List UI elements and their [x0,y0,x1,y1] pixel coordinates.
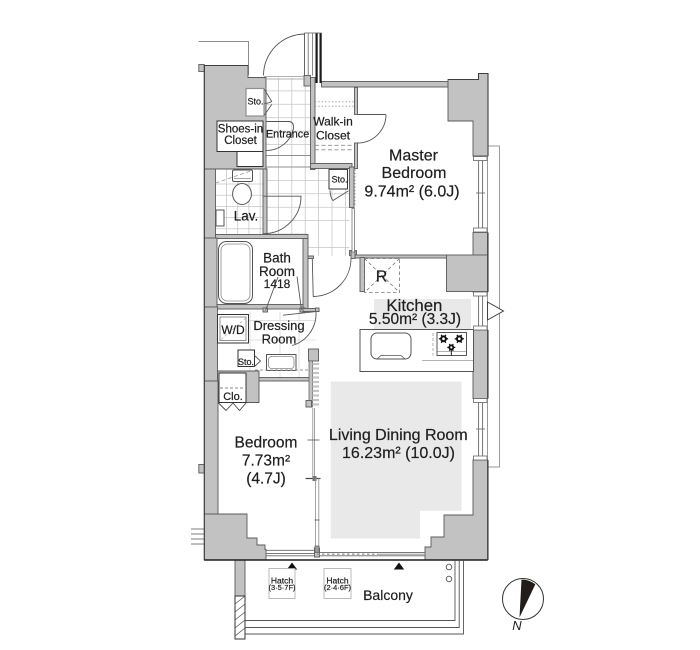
svg-text:Shoes-in: Shoes-in [218,124,263,136]
svg-text:16.23m² (10.0J): 16.23m² (10.0J) [342,445,455,462]
svg-text:Living Dining Room: Living Dining Room [329,427,468,444]
svg-text:Bedroom: Bedroom [235,435,298,452]
svg-text:5.50m² (3.3J): 5.50m² (3.3J) [369,311,461,328]
svg-text:(2·4·6F): (2·4·6F) [324,583,352,592]
svg-text:Master: Master [389,148,439,165]
svg-text:Closet: Closet [316,129,351,143]
svg-text:W/D: W/D [221,323,245,337]
svg-text:N: N [512,618,522,633]
svg-text:Lav.: Lav. [234,209,259,224]
svg-text:Bedroom: Bedroom [382,165,447,182]
svg-text:1418: 1418 [264,277,291,291]
svg-text:Balcony: Balcony [363,587,413,603]
svg-text:7.73m²: 7.73m² [242,453,290,470]
svg-text:Sto.: Sto. [331,175,347,185]
svg-text:Room: Room [262,332,297,347]
svg-text:(4.7J): (4.7J) [246,471,286,488]
svg-text:Closet: Closet [224,135,257,147]
svg-text:9.74m² (6.0J): 9.74m² (6.0J) [364,184,459,201]
svg-text:Entrance: Entrance [266,129,309,141]
svg-text:R: R [376,269,388,286]
svg-text:Walk-in: Walk-in [313,115,353,129]
svg-text:Sto.: Sto. [238,357,254,367]
svg-text:Sto.: Sto. [247,97,263,107]
svg-text:Clo.: Clo. [223,391,243,403]
svg-text:(3·5·7F): (3·5·7F) [268,583,296,592]
